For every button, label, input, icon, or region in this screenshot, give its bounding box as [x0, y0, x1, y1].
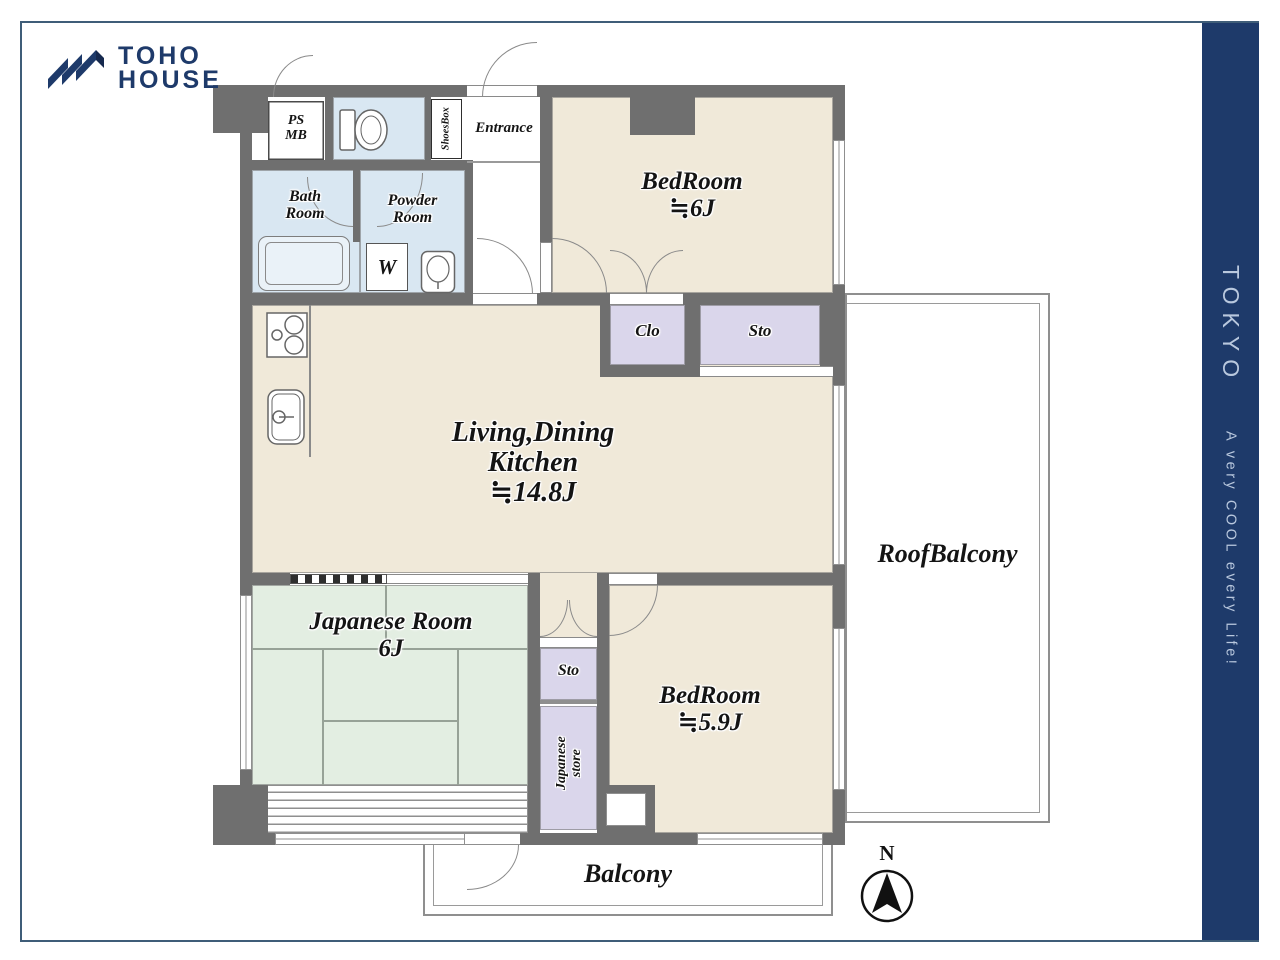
wall	[252, 160, 465, 170]
wall	[597, 573, 609, 585]
japanese-store-line1: Japanese	[554, 701, 569, 825]
wall	[833, 85, 845, 140]
brand-name-line2: HOUSE	[118, 68, 222, 93]
bath-line2: Room	[254, 205, 356, 222]
wall	[823, 833, 845, 845]
floor-plan-page: TOHO HOUSE TOKYO A very COOL every Life!	[0, 0, 1280, 960]
wall	[540, 97, 552, 242]
tatami-line	[457, 648, 459, 785]
ldk-line2: Kitchen	[378, 448, 688, 478]
bedroom-north-size: ≒6J	[592, 195, 792, 222]
bedroom-south-doorway	[609, 573, 657, 585]
shoes-box: ShoesBox	[431, 99, 462, 159]
bedroom-north-name: BedRoom	[592, 168, 792, 195]
banner-region-text: TOKYO	[1217, 265, 1244, 385]
genkan-step-line	[467, 161, 540, 163]
wall	[520, 833, 697, 845]
toho-house-logo-icon	[46, 41, 108, 95]
fusuma-sliding-door	[387, 574, 528, 584]
japanese-room-veranda-strip	[252, 785, 528, 833]
bedroom-south-name: BedRoom	[610, 682, 810, 709]
ldk-line1: Living,Dining	[378, 418, 688, 448]
powder-sink-icon	[420, 250, 456, 294]
door-swing-arc	[482, 42, 537, 97]
side-banner: TOKYO A very COOL every Life!	[1202, 23, 1259, 940]
door-swing-arc	[273, 55, 313, 97]
brand-name: TOHO HOUSE	[118, 44, 222, 93]
tatami-line	[322, 648, 324, 785]
shoes-box-label: ShoesBox	[440, 99, 451, 159]
ps-line2: MB	[268, 128, 324, 143]
kitchen-counter-line	[309, 305, 311, 457]
wall	[528, 585, 540, 833]
wall-pillar	[630, 97, 695, 135]
label-ps-mb: PS MB	[268, 113, 324, 143]
wall	[325, 97, 333, 160]
label-bedroom-south: BedRoom ≒5.9J	[610, 682, 810, 736]
wall	[537, 85, 845, 97]
window	[240, 595, 252, 770]
label-bath: Bath Room	[254, 188, 356, 223]
japanese-room-size: 6J	[262, 635, 520, 662]
balcony-door-gap	[465, 833, 520, 845]
wall	[240, 97, 252, 595]
washing-machine-icon: W	[366, 243, 408, 291]
closet-doorway	[610, 293, 683, 305]
bathtub-inner-line	[265, 242, 343, 285]
compass-north-letter: N	[879, 841, 894, 865]
toilet-icon	[338, 105, 390, 155]
pillar-void	[606, 793, 646, 826]
wall	[240, 573, 290, 585]
ldk-size: ≒14.8J	[378, 478, 688, 508]
tatami-line	[322, 720, 458, 722]
japanese-store-line2: store	[569, 701, 584, 825]
label-japanese-store: Japanese store	[554, 701, 584, 825]
bedroom-north-door-leaf	[540, 242, 552, 293]
label-sto-north: Sto	[700, 322, 820, 340]
window	[833, 628, 845, 790]
bath-line1: Bath	[254, 188, 356, 205]
label-sto-south: Sto	[540, 662, 597, 679]
wall	[597, 585, 609, 785]
wall	[683, 293, 845, 305]
kitchen-sink-icon	[266, 388, 306, 446]
japanese-room-name: Japanese Room	[262, 608, 520, 635]
wall	[240, 833, 275, 845]
wall	[657, 573, 845, 585]
brand-logo: TOHO HOUSE	[46, 41, 222, 95]
powder-line1: Powder	[361, 192, 464, 209]
banner-tagline-text: A very COOL every Life!	[1223, 431, 1239, 667]
north-compass: N	[856, 838, 918, 928]
wall	[528, 573, 540, 585]
brand-name-line1: TOHO	[118, 44, 222, 69]
label-roof-balcony: RoofBalcony	[845, 540, 1050, 568]
floor-plan: W ShoesBox PS MB Entrance Bath Room Powd…	[0, 0, 1280, 960]
wall	[240, 293, 473, 305]
label-entrance: Entrance	[466, 120, 542, 136]
window	[833, 385, 845, 565]
wall	[685, 305, 700, 365]
label-clo: Clo	[610, 322, 685, 340]
bathtub-icon	[258, 236, 350, 291]
sto-doorway	[540, 637, 597, 648]
washer-label: W	[378, 256, 397, 279]
powder-line2: Room	[361, 209, 464, 226]
bedroom-south-size: ≒5.9J	[610, 709, 810, 736]
wall	[600, 365, 700, 377]
stove-icon	[266, 312, 308, 358]
wall	[465, 160, 473, 293]
ps-line1: PS	[268, 113, 324, 128]
window	[833, 140, 845, 285]
fusuma-rail-dashed	[290, 574, 387, 584]
window-sliding	[275, 833, 465, 845]
window-sliding	[697, 833, 823, 845]
sto-sliding-door	[700, 366, 833, 377]
label-japanese-room: Japanese Room 6J	[262, 608, 520, 662]
label-bedroom-north: BedRoom ≒6J	[592, 168, 792, 222]
label-balcony: Balcony	[423, 860, 833, 888]
label-ldk: Living,Dining Kitchen ≒14.8J	[378, 418, 688, 509]
doorway	[473, 293, 537, 305]
label-powder: Powder Room	[361, 192, 464, 227]
